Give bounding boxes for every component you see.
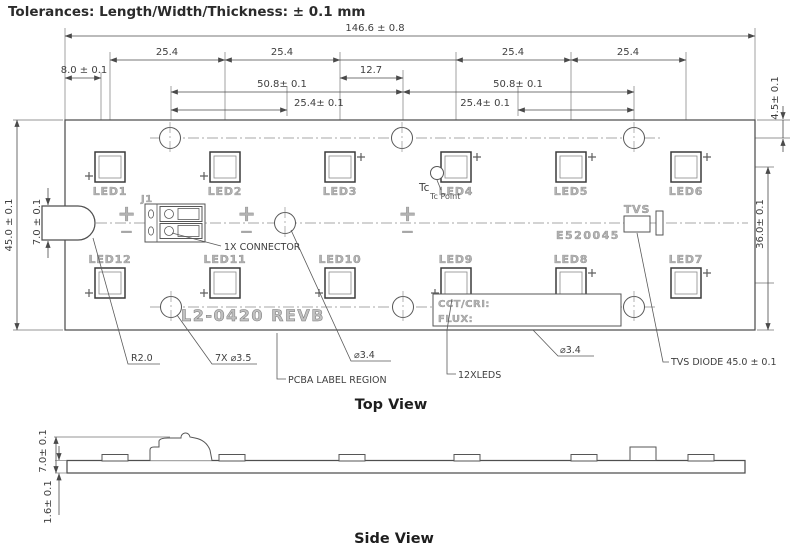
dim-overall-height: 45.0 ± 0.1 (4, 199, 15, 252)
wire-exit-tab (42, 206, 95, 240)
j1-label: J1 (140, 194, 153, 205)
ul-number: E520045 (556, 229, 620, 242)
dim-led-pitch-1: 25.4 (156, 47, 178, 58)
dim-hole-span-left: 50.8± 0.1 (257, 79, 307, 90)
minus-mark: − (240, 222, 254, 241)
cct-label: CCT/CRI: (438, 299, 490, 310)
dim-top-edge-to-hole: 4.5± 0.1 (770, 76, 781, 119)
led-label: LED9 (439, 253, 474, 266)
dim-led-to-bottom: 36.0± 0.1 (755, 199, 766, 249)
dim-side-height: 7.0± 0.1 (38, 429, 49, 472)
cct-label-box: CCT/CRI: FLUX: (433, 294, 621, 326)
led-label: LED5 (554, 185, 589, 198)
dim-edge-to-led: 8.0 ± 0.1 (61, 65, 108, 76)
dim-led-pitch-3: 25.4 (502, 47, 524, 58)
led-label: LED12 (89, 253, 132, 266)
callout-leds-count: 12XLEDS (458, 370, 501, 381)
top-view: 146.6 ± 0.8 25.4 25.4 25.4 25.4 8.0 ± 0.… (4, 23, 790, 413)
tolerance-note: Tolerances: Length/Width/Thickness: ± 0.… (8, 4, 365, 20)
dim-overall-width: 146.6 ± 0.8 (345, 23, 404, 34)
minus-mark: − (401, 222, 415, 241)
dimensions-top: 146.6 ± 0.8 25.4 25.4 25.4 25.4 8.0 ± 0.… (61, 23, 755, 110)
top-view-caption: Top View (355, 397, 428, 413)
callout-mounting-holes: 7X ⌀3.5 (215, 353, 251, 364)
pcb-side-profile (67, 461, 745, 474)
callout-hole-dia-left: ⌀3.4 (354, 350, 375, 361)
tvs-label: TVS (624, 203, 650, 216)
drawing-sheet: Tolerances: Length/Width/Thickness: ± 0.… (0, 0, 791, 551)
dim-hole-pos-left: 25.4± 0.1 (294, 98, 344, 109)
dimensions-side: 7.0± 0.1 1.6± 0.1 (38, 429, 170, 523)
dim-led-pitch-2: 25.4 (271, 47, 293, 58)
flux-label: FLUX: (438, 314, 473, 325)
led-label: LED7 (669, 253, 704, 266)
led-label: LED1 (93, 185, 128, 198)
side-view: 7.0± 0.1 1.6± 0.1 Side View (38, 429, 745, 547)
dim-tab-height: 7.0 ± 0.1 (32, 199, 43, 246)
tc-point-label: Tc Point (429, 192, 460, 201)
minus-mark: − (120, 222, 134, 241)
dim-led-pitch-4: 25.4 (617, 47, 639, 58)
callout-tvs-diode: TVS DIODE 45.0 ± 0.1 (670, 357, 777, 368)
technical-drawing: Tolerances: Length/Width/Thickness: ± 0.… (0, 0, 791, 551)
dim-hole-pos-right: 25.4± 0.1 (460, 98, 510, 109)
callout-connector: 1X CONNECTOR (224, 242, 301, 253)
led-label: LED10 (319, 253, 362, 266)
callout-pcba-label: PCBA LABEL REGION (288, 375, 387, 386)
tc-label: Tc (418, 182, 430, 194)
dim-half-pitch: 12.7 (360, 65, 382, 76)
led-label: LED6 (669, 185, 704, 198)
callout-corner-radius: R2.0 (131, 353, 153, 364)
side-tvs-profile (630, 447, 656, 461)
led-label: LED2 (208, 185, 243, 198)
led-label: LED8 (554, 253, 589, 266)
side-view-caption: Side View (354, 531, 434, 547)
dim-hole-span-right: 50.8± 0.1 (493, 79, 543, 90)
dim-pcb-thickness: 1.6± 0.1 (43, 480, 54, 523)
callout-hole-dia-right: ⌀3.4 (560, 345, 581, 356)
led-label: LED3 (323, 185, 358, 198)
led-label: LED11 (204, 253, 247, 266)
board-label: L2-0420 REVB (181, 306, 325, 325)
